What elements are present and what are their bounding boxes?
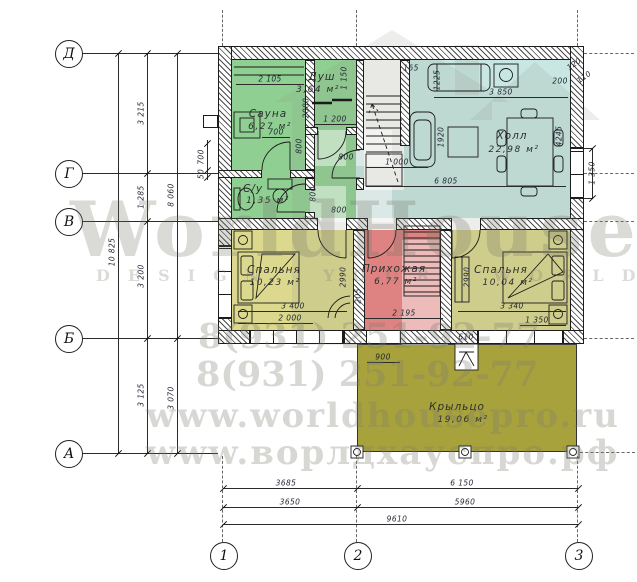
room-shower-area: 3,64 м² [296,85,340,95]
dim-stairs: 1 000 [385,158,408,167]
dim-bottom-r2a: 3650 [280,498,301,507]
dim-line-bed2-w [458,311,566,312]
dim-hall-d: 1920 [437,127,446,148]
axis-dash-a-right [580,452,635,453]
room-bedroom-right-area: 10,04 м² [482,278,533,288]
axis-dash-b-right [584,338,634,339]
room-shower-name: Душ [308,71,335,83]
dim-line-sauna-w [236,84,304,85]
axis-col-3: 3 [565,542,593,570]
axis-dash-3-top [577,10,578,46]
room-wc-name: С/у [243,183,263,195]
dim-left-vb: 3 200 [137,264,146,287]
floor-plan: 3 215 1 285 3 200 3 125 10 825 8 060 3 0… [0,0,637,582]
dim-line-bed1-w [238,311,347,312]
dim-line-bed1-win [238,323,313,324]
dim-chain-bottom-2 [223,507,578,508]
room-sauna-area: 6,27 м² [248,122,292,132]
room-wc-area: 1,35 м² [246,196,290,206]
room-bedroom-right-name: Спальня [474,264,528,276]
dim-bottom-r1a: 3685 [276,479,297,488]
axis-row-d: Д [55,40,83,68]
axis-row-g: Г [55,160,83,188]
axis-dash-2-top [356,10,357,46]
room-hallway-area: 6,77 м² [374,277,418,287]
dim-shower-w: 1 200 [323,115,346,124]
axis-dash-d-right [584,53,634,54]
dim-line-hall-top [434,97,568,98]
axis-dash-2-bottom [356,456,357,542]
dim-shower-h: 1 150 [340,66,349,89]
dim-off: 205 [354,288,363,304]
dim-left-upper: 8 060 [167,183,176,206]
dim-bed2-win: 1 350 [525,316,548,325]
axis-line-v [81,221,218,222]
dim-chain-left-axes [147,53,148,453]
axis-col-1: 1 [210,542,238,570]
room-hallway-name: Прихожая [362,263,426,275]
axis-row-v: В [55,208,83,236]
dim-right-hall: 4245 [555,126,564,147]
dim-chain-left-outer [177,53,178,453]
room-hall-area: 22,98 м² [488,145,539,155]
dim-chain-bottom-1 [223,488,578,489]
axis-row-a: А [55,440,83,468]
dim-wc-door: 800 [331,206,347,215]
axis-col-2: 2 [344,542,372,570]
dim-hallway-w: 2 195 [392,309,415,318]
dim-hall-top: 3 850 [489,88,512,97]
dim-bed1-win: 2 000 [278,314,301,323]
dim-line-bed2-win [520,325,566,326]
room-porch-area: 19,06 м² [437,415,488,425]
dim-step: 900 [375,353,391,362]
dim-left-dg: 3 215 [137,101,146,124]
dim-chain-vent [207,140,208,180]
dim-sauna-h: 2080 [302,98,311,119]
dim-line-step [367,362,400,363]
dim-chain-bottom-3 [223,524,578,525]
room-porch-name: Крыльцо [429,401,485,413]
axis-line-b [81,338,218,339]
dim-bed2-w: 3 340 [500,302,523,311]
dim-bed1-w: 3 400 [281,302,304,311]
axis-row-b: Б [55,325,83,353]
dim-line-hallway-w [365,318,443,319]
dim-bottom-total: 9610 [387,515,408,524]
axis-dash-v-right [584,221,634,222]
axis-line-d [81,53,218,54]
dim-bottom-r2b: 5960 [455,498,476,507]
axis-dash-1-top [222,10,223,46]
dim-bed2-d: 2990 [463,267,472,288]
dim-right-window: 1 350 [588,161,597,184]
dim-left-vent2: 50 [197,169,206,179]
dim-line-stairs [366,167,428,168]
dim-left-ba: 3 125 [137,383,146,406]
dim-top-a: 165 [403,64,419,73]
dim-right-a: 200 [552,77,568,86]
dim-left-lower: 3 070 [167,386,176,409]
axis-dash-1-bottom [222,456,223,542]
dim-left-gv: 1 285 [137,185,146,208]
room-hall-name: Холл [496,130,527,142]
dim-hall-w: 6 805 [434,177,457,186]
dim-bottom-r1b: 6 150 [450,479,473,488]
dim-line-hall-w [366,186,566,187]
dim-entry: 610 [458,333,474,342]
dim-line-sauna-door [262,137,290,138]
dim-left-vent: 700 [197,149,206,165]
dim-sauna-w: 2 105 [258,75,281,84]
room-sauna-name: Сауна [249,108,287,120]
axis-line-a [81,453,218,454]
dim-left-total: 10 825 [108,238,117,267]
room-bedroom-left-area: 10,23 м² [249,278,300,288]
dim-shower-door: 800 [295,138,304,154]
dim-hall-door: 800 [338,153,354,162]
dim-wc-door2: 800 [309,186,318,202]
dim-chain-left-total [118,53,119,453]
room-bedroom-left-name: Спальня [247,264,301,276]
dim-bed1-d: 2990 [339,267,348,288]
axis-dash-3-bottom [577,456,578,542]
dim-top-b: 1225 [433,70,442,91]
dim-line-shower-w [315,124,356,125]
